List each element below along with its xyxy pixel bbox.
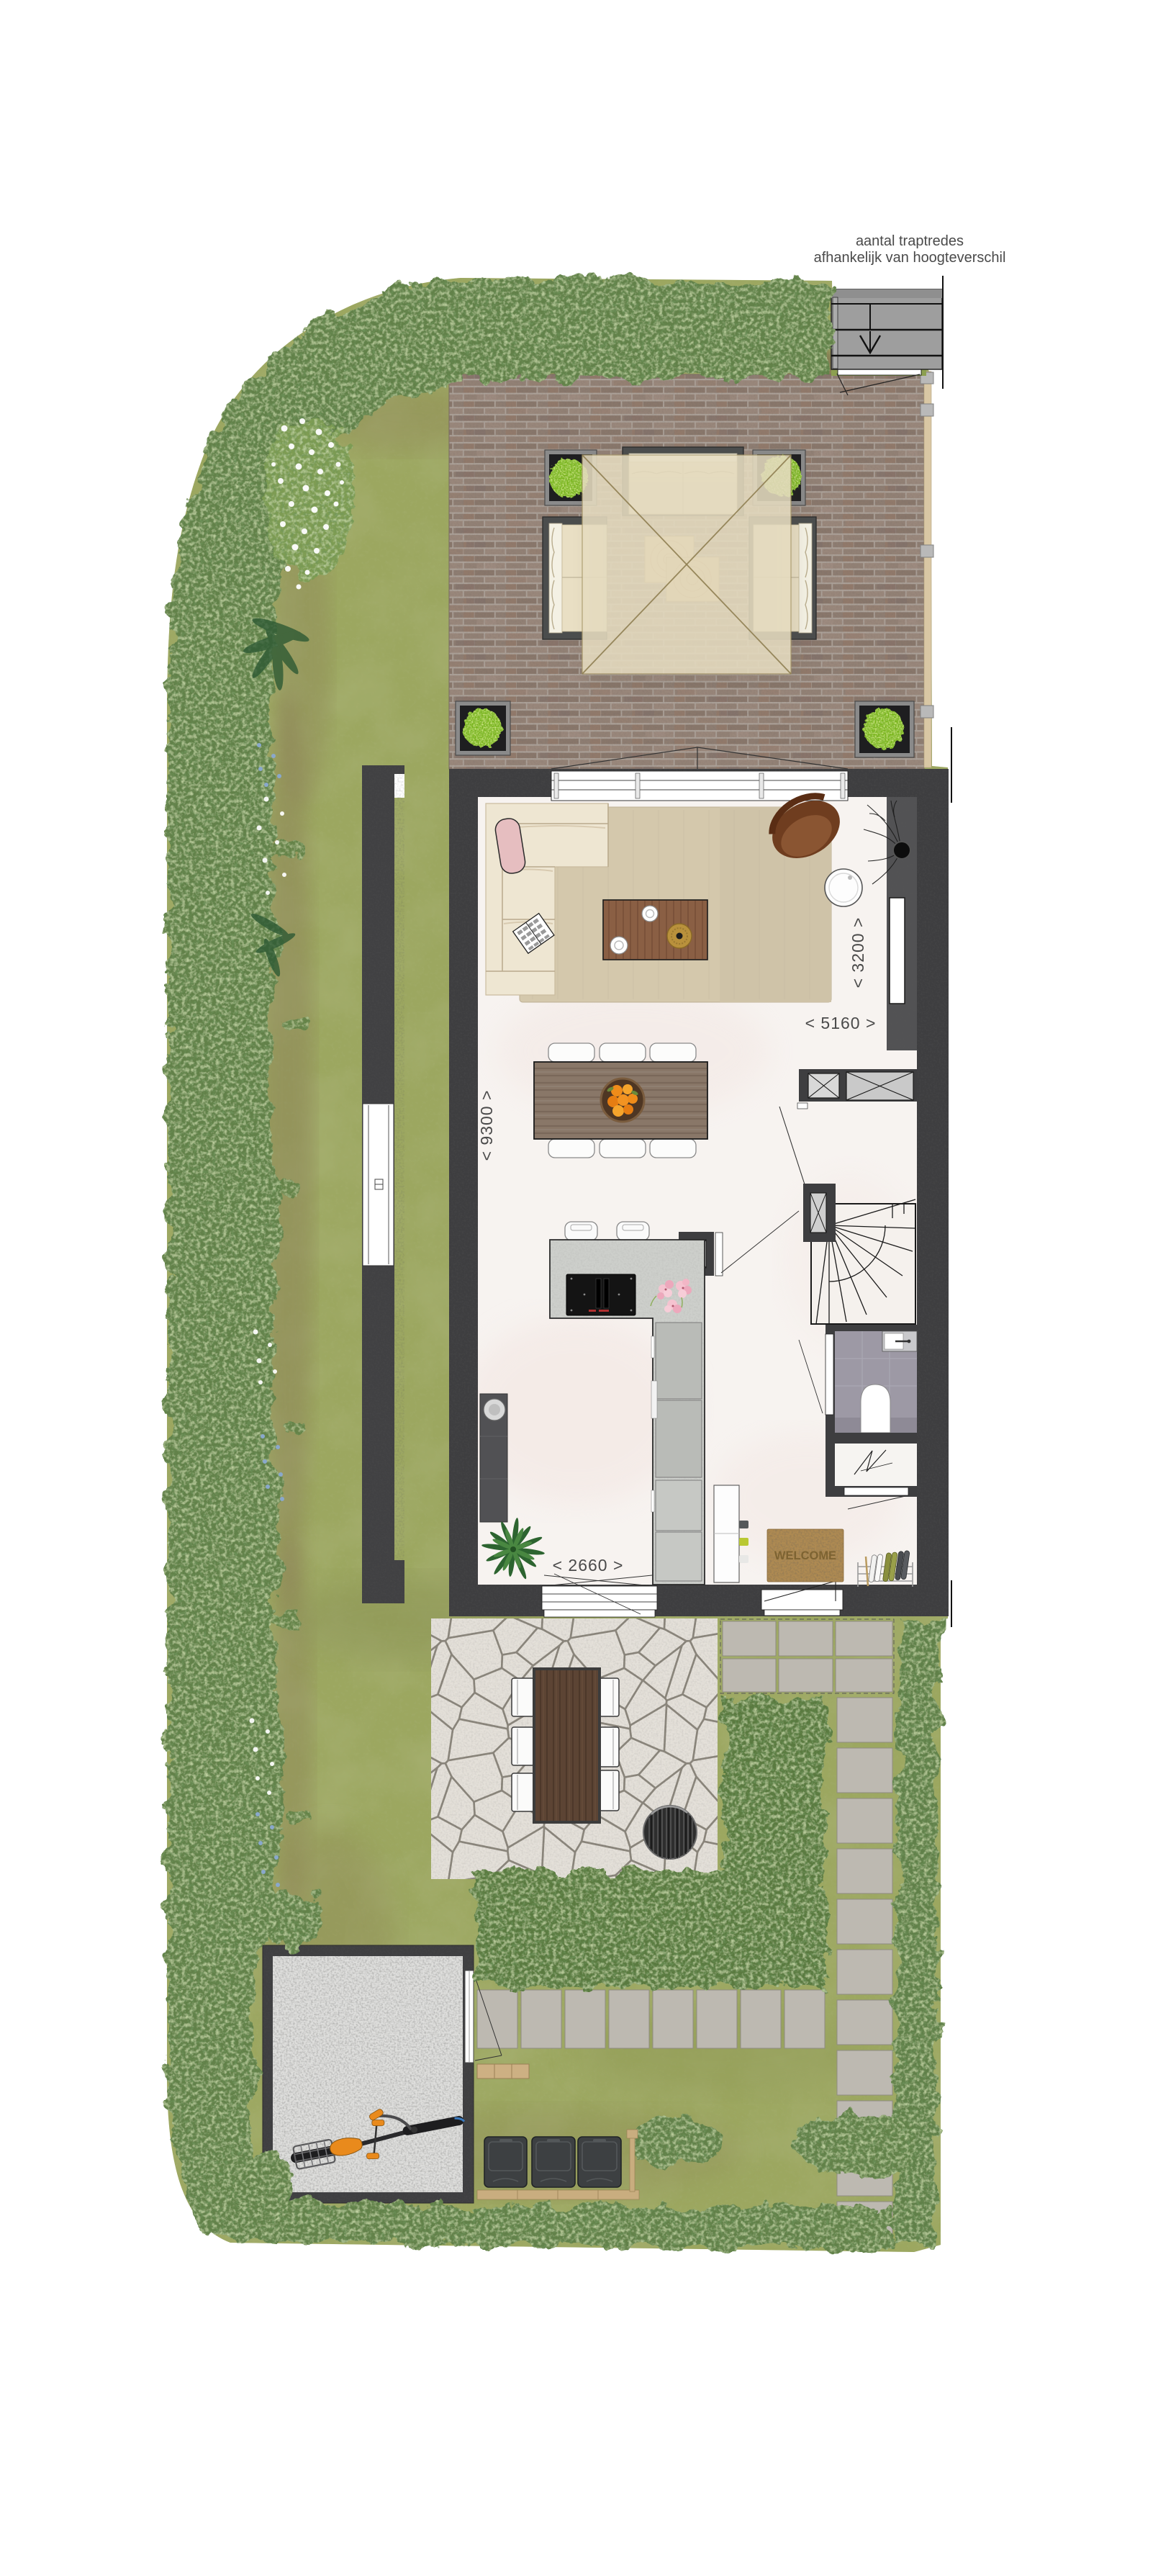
svg-text:< 2660 >: < 2660 > [553, 1556, 624, 1575]
svg-text:afhankelijk van hoogteverschil: afhankelijk van hoogteverschil [814, 250, 1006, 266]
svg-text:WELCOME: WELCOME [774, 1549, 836, 1562]
svg-text:< 3200 >: < 3200 > [849, 917, 867, 988]
svg-text:aantal traptredes: aantal traptredes [856, 233, 964, 249]
svg-text:< 9300 >: < 9300 > [477, 1090, 496, 1161]
svg-text:< 5160 >: < 5160 > [805, 1014, 877, 1032]
